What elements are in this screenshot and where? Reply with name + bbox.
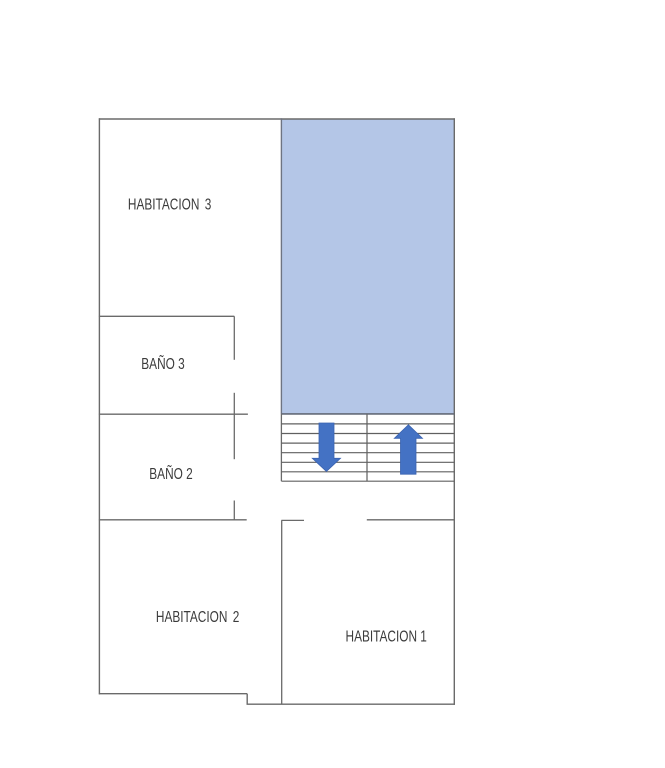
svg-text:HABITACION 2: HABITACION 2 [156,607,240,625]
svg-text:BAÑO 2: BAÑO 2 [149,464,193,482]
svg-text:HABITACION 1: HABITACION 1 [346,627,428,645]
svg-text:HABITACION 3: HABITACION 3 [128,195,212,213]
svg-text:BAÑO 3: BAÑO 3 [141,354,185,372]
